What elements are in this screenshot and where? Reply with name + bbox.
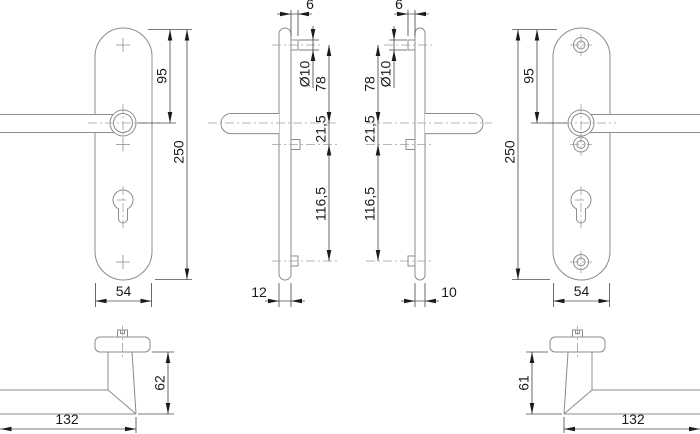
dim-label-offset: 95: [154, 68, 170, 84]
left-plate-front-view: 95 250 54: [0, 28, 192, 307]
left-profile-thickness-dimension: 12: [251, 283, 305, 307]
dim-label-height: 62: [152, 375, 168, 391]
right-profile-thickness-dimension: 10: [401, 283, 457, 307]
dim-label-screw-to-pin: 116,5: [362, 187, 378, 221]
dim-label-screw-to-pin: 116,5: [313, 187, 329, 221]
dim-label-pin-to-axis: 78: [362, 76, 378, 92]
left-profile-lever-neck: [221, 114, 279, 134]
right-profile-plate: [415, 28, 425, 280]
dim-label-height: 250: [171, 140, 187, 164]
left-plate-outline: [95, 28, 152, 280]
right-plate-width-dimension: 54: [554, 283, 610, 307]
right-profile-pin-protrusion-dimension: 6: [394, 0, 429, 36]
right-plate-offset-dimension: 95: [512, 30, 567, 124]
dim-label-offset: 95: [521, 68, 537, 84]
screw-position-crosses: [116, 38, 130, 269]
left-profile-pin-protrusion-dimension: 6: [277, 0, 314, 36]
dim-label-pin-diameter: Ø10: [297, 61, 313, 88]
dim-label-thickness: 12: [251, 284, 267, 300]
right-lever-side-view: 61 132: [516, 326, 700, 433]
dim-label-thickness: 10: [441, 284, 457, 300]
dim-label-length: 132: [621, 411, 645, 427]
right-plate-height-dimension: 250: [502, 30, 551, 280]
dim-label-axis-to-screw: 21,5: [313, 115, 329, 142]
dim-label-pin-protrusion: 6: [306, 0, 314, 12]
dim-label-height: 250: [502, 140, 518, 164]
left-profile-chain-dimension: 78 21,5 116,5: [313, 45, 332, 261]
left-lever-height-dimension: 62: [138, 352, 174, 414]
dim-label-axis-to-screw: 21,5: [362, 115, 378, 142]
left-plate-height-dimension: 250: [155, 30, 192, 280]
left-profile-plate: [279, 28, 291, 280]
right-profile-lever-neck: [425, 114, 483, 134]
right-profile-view: 6 Ø10 78 21,5 116,5 10: [362, 0, 493, 307]
left-plate-width-dimension: 54: [96, 283, 152, 307]
dim-label-width: 54: [574, 283, 590, 299]
right-lever-height-dimension: 61: [516, 352, 563, 414]
left-lever-side-view: 62 132: [0, 326, 174, 433]
left-plate-offset-dimension: 95: [137, 30, 192, 124]
right-profile-pin-diameter-dimension: Ø10: [378, 26, 408, 88]
door-handle-technical-drawing: 95 250 54 6: [0, 0, 700, 434]
right-plate-outline: [553, 28, 610, 280]
left-lever-bar: [0, 115, 118, 133]
lever-outline: [0, 352, 136, 414]
right-lever-bar: [588, 115, 700, 133]
dim-label-pin-protrusion: 6: [395, 0, 403, 12]
dim-label-length: 132: [55, 411, 79, 427]
dim-label-height: 61: [516, 375, 532, 391]
right-plate-front-view: 95 250 54: [502, 28, 700, 307]
dim-label-pin-to-axis: 78: [313, 76, 329, 92]
dim-label-pin-diameter: Ø10: [378, 61, 394, 88]
technical-drawing-page: 95 250 54 6: [0, 0, 700, 434]
lever-outline: [564, 352, 700, 414]
dim-label-width: 54: [116, 283, 132, 299]
left-profile-view: 6 Ø10 78 21,5 116,5 12: [208, 0, 338, 307]
screw-symbols: [570, 34, 592, 273]
right-profile-chain-dimension: 78 21,5 116,5: [362, 45, 381, 261]
